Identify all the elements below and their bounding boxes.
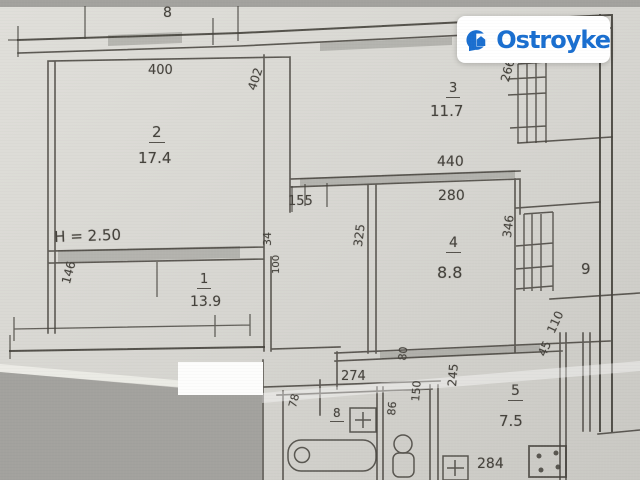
floorplan-photo: 8 400 402 2 17.4 H = 2.50 146 1 13.9 34 … xyxy=(0,0,640,480)
dim-155: 155 xyxy=(288,195,313,208)
room4-area: 8.8 xyxy=(437,265,462,281)
dim-34: 34 xyxy=(262,232,273,246)
room5-number: 5 xyxy=(508,384,523,401)
room1-area: 13.9 xyxy=(190,295,221,309)
ceiling-height-note: H = 2.50 xyxy=(54,228,121,245)
room3-number: 3 xyxy=(446,82,460,98)
dim-245: 245 xyxy=(446,363,460,387)
ostroyke-logo-icon xyxy=(466,25,488,55)
room5-area: 7.5 xyxy=(499,414,523,429)
room4-number: 4 xyxy=(446,236,461,253)
dim-top: 8 xyxy=(163,6,172,20)
room2-area: 17.4 xyxy=(138,151,171,166)
room2-width-dim: 400 xyxy=(148,64,173,77)
dim-274: 274 xyxy=(341,370,366,383)
dim-284: 284 xyxy=(477,457,504,471)
dim-150: 150 xyxy=(410,380,423,402)
dim-346: 346 xyxy=(501,214,516,238)
dim-280: 280 xyxy=(438,189,465,203)
ostroyke-logo: Ostroyke xyxy=(457,16,610,63)
dim-100: 100 xyxy=(272,255,282,274)
bath-number: 8 xyxy=(330,407,344,422)
dim-78: 78 xyxy=(287,392,301,408)
dim-86: 86 xyxy=(386,401,398,416)
redaction-box xyxy=(178,362,263,395)
dim-440: 440 xyxy=(437,155,464,169)
dim-80: 80 xyxy=(397,346,409,361)
photo-edge xyxy=(0,0,640,7)
dim-325: 325 xyxy=(352,223,367,247)
room1-number: 1 xyxy=(197,273,211,289)
dim-9: 9 xyxy=(581,262,591,277)
room2-number: 2 xyxy=(149,125,165,143)
ostroyke-logo-text: Ostroyke xyxy=(496,26,610,54)
room3-area: 11.7 xyxy=(430,104,463,119)
